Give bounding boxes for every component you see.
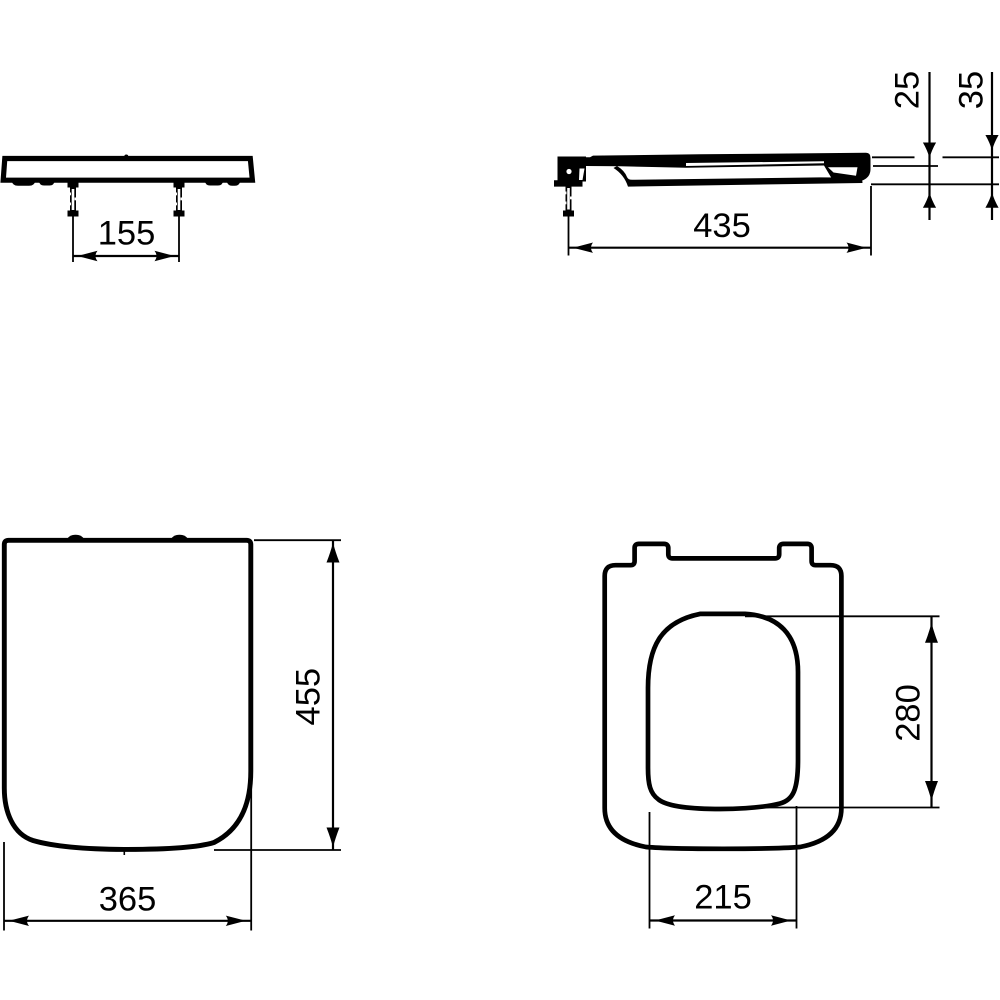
svg-text:25: 25 — [889, 71, 927, 109]
svg-text:365: 365 — [99, 881, 157, 919]
svg-text:215: 215 — [694, 879, 752, 917]
svg-text:155: 155 — [98, 215, 156, 253]
svg-text:455: 455 — [290, 668, 328, 726]
svg-text:435: 435 — [693, 207, 751, 245]
svg-text:280: 280 — [890, 684, 928, 742]
svg-text:35: 35 — [953, 71, 991, 109]
